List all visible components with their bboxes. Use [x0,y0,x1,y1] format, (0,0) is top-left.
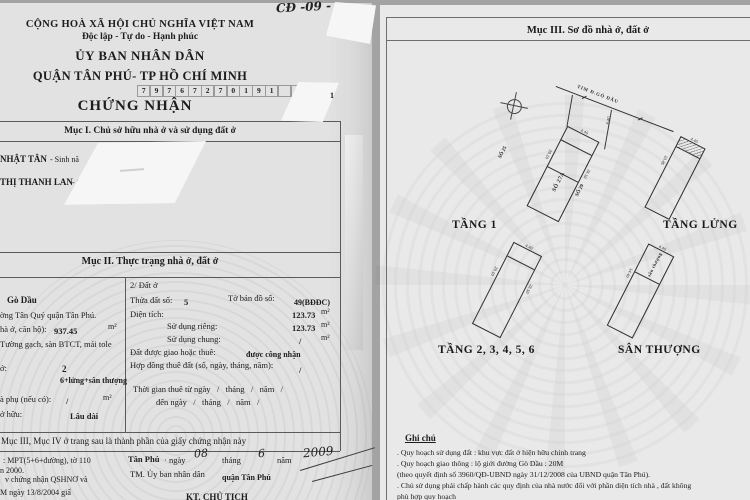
national-title: CỘNG HOÀ XÃ HỘI CHỦ NGHĨA VIỆT NAM [0,19,340,31]
land-grant-label: Đất được giao hoặc thuê: [130,348,216,357]
plan-division-line [507,256,534,271]
certificate-serial-boxes: 7 9 7 6 7 2 7 0 1 9 1 [137,85,303,97]
compass-icon [497,89,530,122]
house-floors-value: 2 [62,365,67,375]
side-dim: 28.10 [583,169,592,180]
plan-rect-tang1: SỐ 27A 4.40 28.10 28.10 [527,126,600,223]
note-line: phù hợp quy hoạch [397,493,456,500]
serial-digit: 1 [239,85,252,97]
land-plot-value: 5 [184,298,188,307]
note-line: (theo quyết định số 3960/QĐ-UBND ngày 31… [397,471,650,479]
land-contract-value: / [299,366,301,375]
land-lease-to: đến ngày / tháng / năm / [156,398,259,407]
side-dim: 28.10 [490,266,499,277]
floor-plan-tang23456: 4.40 28.10 28.10 [455,238,550,343]
side-dim: 28.10 [544,149,553,160]
serial-digit: 7 [214,85,227,97]
attachment-note: Mục III, Mục IV ở trang sau là thành phầ… [1,437,246,447]
note-line: . Quy hoạch giao thông : lộ giới đường G… [397,460,563,468]
house-area-value: 937.45 [54,327,77,336]
land-private-unit: m² [321,321,330,330]
plan-label-tang23456: TẦNG 2, 3, 4, 5, 6 [438,344,535,356]
land-contract-label: Hợp đồng thuê đất (số, ngày, tháng, năm)… [130,361,273,370]
serial-digit: 6 [175,85,188,97]
signing-district-stamp: quận Tân Phú [222,474,271,483]
plan-label-tang1: TẦNG 1 [452,219,497,231]
serial-digit: 1 [265,85,278,97]
house-aux-value: / [66,397,68,406]
owner1-name: NHẬT TÂN [0,155,47,165]
land-plot-label: Thửa đất số: [130,296,172,305]
issue-month-handwritten: 6 [258,448,266,461]
plan-label-tanglung: TẦNG LỬNG [663,219,738,231]
footer-ref-line4: M ngày 13/8/2004 giấ [0,489,71,498]
floor-plan-tang1: SỐ 27A 4.40 28.10 28.10 [505,125,605,225]
note-line: . Chủ sử dụng phải chấp hành các quy địn… [397,482,691,490]
serial-digit: 0 [227,85,240,97]
roof-terrace-interior-label: sân thượng [646,252,663,278]
footer-ref-line1: : MPT(5+6+đường), tờ 110 [3,457,91,466]
issue-year-word: năm [277,456,292,465]
table-line [0,252,340,253]
section1-header: Mục I. Chủ sở hữu nhà ở và sử dụng đất ở [0,126,340,136]
scanned-certificate-photo: CỘNG HOÀ XÃ HỘI CHỦ NGHĨA VIỆT NAM Độc l… [0,0,750,500]
land-shared-value: / [299,337,301,346]
floor-plan-santhuong: sân thượng 4.40 14.40 [592,240,682,345]
plan-rect-tanglung: 4.40 10.45 [644,136,705,220]
house-area-label: hà ở, căn hộ): [0,325,47,334]
house-area-unit: m² [108,323,117,332]
serial-digit: 9 [252,85,265,97]
section3-header: Mục III. Sơ đồ nhà ở, đất ở [386,25,750,37]
issue-place: Tân Phú [128,455,159,464]
land-shared-label: Sử dụng chung: [167,335,221,344]
land-shared-unit: m² [321,334,330,343]
owner1-birth-note: - Sinh nă [50,156,79,165]
land-lease-from: Thời gian thuê từ ngày / tháng / năm / [133,385,283,394]
land-title: 2/ Đất ở [130,281,158,290]
notes-title: Ghi chú [405,434,436,444]
serial-digit: 2 [201,85,214,97]
table-line [340,121,341,451]
land-grant-value: được công nhận [246,351,301,360]
house-structure: Tường gạch, sàn BTCT, mái tole [0,340,112,349]
serial-digit [278,85,291,97]
note-line: . Quy hoạch sử dụng đất : khu vực đất ở … [397,449,586,457]
issuer-name: ỦY BAN NHÂN DÂN [0,49,340,63]
serial-digit: 7 [188,85,201,97]
table-line [0,451,340,452]
serial-digit: 7 [163,85,176,97]
issue-month-word: tháng [222,456,241,465]
house-number-label: SỐ 27A [552,171,567,193]
house-aux-label: à phụ (nếu có): [0,395,51,404]
land-map-label: Tờ bản đồ số: [228,294,275,303]
issue-day-handwritten: 08 [194,448,209,461]
issuer-district: QUẬN TÂN PHÚ- TP HỒ CHÍ MINH [0,70,340,84]
plan-division-line [561,140,592,156]
front-dim: 4.40 [524,243,533,251]
land-private-label: Sử dụng riêng: [167,322,217,331]
table-column-divider [125,277,126,432]
floor-plan-tanglung: 4.40 10.45 [630,130,715,230]
section2-header: Mục II. Thực trạng nhà ở, đất ở [0,256,340,267]
redaction-faint-mark [120,168,144,172]
issue-date-word: · ngày [164,456,185,465]
plan-rect-santhuong: sân thượng 4.40 14.40 [607,243,675,338]
table-line [0,432,340,433]
deputy-chairman-line: KT. CHỦ TỊCH [186,493,248,500]
owner2-name: THỊ THANH LAN [0,178,73,188]
land-area-label: Diện tích: [130,310,164,319]
side-dim: 10.45 [660,155,669,166]
diagram-page-border [386,17,750,500]
plan-rect-tang23456: 4.40 28.10 28.10 [472,242,542,339]
house-ward: ờng Tân Quý quận Tân Phú. [0,311,96,320]
plan-label-santhuong: SÂN THƯỢNG [618,344,701,356]
certificate-title: CHỨNG NHẬN [0,98,335,115]
signing-authority-line: TM. Ủy ban nhân dân [130,470,205,479]
house-floors-label: ở: [0,364,7,373]
land-area-unit: m² [321,308,330,317]
side-dim: 14.40 [625,267,634,278]
house-aux-unit: m² [103,394,112,403]
national-motto: Độc lập - Tự do - Hạnh phúc [0,32,340,42]
footer-ref-line3: v chứng nhận QSHNƠ và [5,476,88,485]
house-tenure-label: ở hữu: [0,410,22,419]
serial-tail-digit: 1 [330,92,334,101]
land-private-value: 123.73 [292,324,315,333]
serial-digit: 7 [137,85,150,97]
house-tenure-value: Lâu dài [70,412,98,421]
table-line [0,277,340,278]
serial-digit: 9 [150,85,163,97]
side-dim: 28.10 [525,283,534,294]
front-dim: 4.40 [580,128,589,136]
house-floors-note: 6+lửng+sân thượng [60,377,127,386]
table-line [0,121,340,122]
issue-year-handwritten: 2009 [302,445,334,461]
land-area-value: 123.73 [292,311,315,320]
house-street: Gò Dầu [7,296,37,306]
